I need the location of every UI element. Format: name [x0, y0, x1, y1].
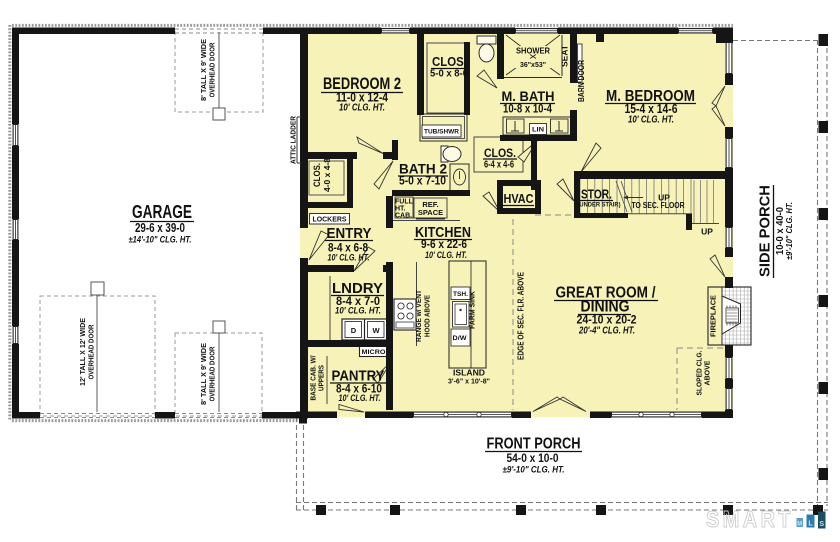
svg-text:5-0 x 7-10: 5-0 x 7-10	[399, 176, 446, 188]
svg-text:(UNDER STAIR): (UNDER STAIR)	[578, 202, 621, 209]
svg-text:LNDRY: LNDRY	[332, 281, 383, 297]
svg-text:24-10 x 20-2: 24-10 x 20-2	[577, 313, 637, 327]
svg-text:SIDE PORCH: SIDE PORCH	[758, 185, 774, 277]
svg-text:SHOWER: SHOWER	[516, 46, 550, 56]
svg-text:HVAC: HVAC	[504, 191, 535, 206]
svg-text:PANTRY: PANTRY	[332, 369, 385, 385]
svg-text:EDGE OF SEC. FLR. ABOVE: EDGE OF SEC. FLR. ABOVE	[517, 271, 526, 360]
svg-text:LIN: LIN	[532, 127, 544, 134]
svg-text:ATTIC LADDER: ATTIC LADDER	[291, 116, 298, 164]
svg-text:ENTRY: ENTRY	[327, 226, 372, 242]
svg-text:TUB/SHWR: TUB/SHWR	[424, 129, 459, 136]
svg-text:D: D	[351, 326, 357, 335]
svg-text:4-0 x 4-8: 4-0 x 4-8	[322, 158, 332, 192]
svg-text:29-6 x 39-0: 29-6 x 39-0	[135, 221, 185, 235]
svg-text:HOOD ABOVE: HOOD ABOVE	[425, 295, 432, 337]
svg-text:GARAGE: GARAGE	[132, 202, 192, 222]
svg-text:UP: UP	[701, 227, 713, 237]
svg-text:CAB.: CAB.	[395, 213, 412, 220]
svg-text:MICRO: MICRO	[362, 349, 386, 356]
svg-text:10' CLG. HT.: 10' CLG. HT.	[628, 115, 674, 126]
svg-text:CLOS.: CLOS.	[484, 146, 516, 160]
svg-text:12' TALL X 12' WIDE: 12' TALL X 12' WIDE	[80, 318, 87, 386]
svg-text:FULL: FULL	[395, 199, 414, 206]
svg-text:TO SEC. FLOOR: TO SEC. FLOOR	[632, 201, 685, 210]
svg-text:3'-6" x 10'-8": 3'-6" x 10'-8"	[448, 379, 490, 386]
svg-text:20'-4" CLG. HT.: 20'-4" CLG. HT.	[578, 326, 635, 337]
svg-text:SMART: SMART	[706, 506, 794, 532]
svg-text:S: S	[819, 521, 824, 528]
svg-text:M: M	[797, 522, 802, 528]
svg-text:OVERHEAD DOOR: OVERHEAD DOOR	[210, 347, 217, 402]
svg-text:FARM SINK: FARM SINK	[470, 291, 477, 329]
svg-text:54-0 x 10-0: 54-0 x 10-0	[507, 451, 559, 465]
svg-text:10' CLG. HT.: 10' CLG. HT.	[339, 393, 381, 404]
svg-text:BASE CAB. W/: BASE CAB. W/	[311, 355, 318, 400]
svg-text:±9'-10" CLG. HT.: ±9'-10" CLG. HT.	[503, 465, 565, 476]
svg-text:±9'-10" CLG. HT.: ±9'-10" CLG. HT.	[784, 202, 794, 260]
svg-text:L: L	[808, 521, 813, 528]
svg-text:TSH.: TSH.	[453, 291, 468, 298]
svg-text:10' CLG. HT.: 10' CLG. HT.	[425, 250, 467, 261]
svg-text:FIREPLACE: FIREPLACE	[711, 295, 718, 337]
svg-text:OVERHEAD DOOR: OVERHEAD DOOR	[89, 325, 96, 380]
svg-text:ABOVE: ABOVE	[703, 361, 712, 386]
svg-text:BARN DOOR: BARN DOOR	[577, 60, 586, 102]
svg-text:±14'-10" CLG. HT.: ±14'-10" CLG. HT.	[129, 235, 192, 246]
svg-text:SPACE: SPACE	[418, 208, 443, 217]
svg-text:FRONT PORCH: FRONT PORCH	[487, 436, 581, 453]
svg-text:HT.: HT.	[395, 206, 406, 213]
svg-text:5-0 x 8-0: 5-0 x 8-0	[430, 68, 468, 80]
svg-text:LOCKERS: LOCKERS	[313, 217, 347, 224]
svg-text:6-4 x 4-6: 6-4 x 4-6	[484, 160, 514, 171]
svg-text:8' TALL X 9' WIDE: 8' TALL X 9' WIDE	[201, 39, 208, 101]
svg-text:RANGE w/ VENT: RANGE w/ VENT	[416, 289, 423, 342]
svg-text:M. BATH: M. BATH	[502, 88, 555, 104]
svg-text:OVERHEAD DOOR: OVERHEAD DOOR	[210, 43, 217, 98]
svg-text:STOR.: STOR.	[581, 188, 612, 202]
svg-text:ISLAND: ISLAND	[453, 369, 485, 378]
svg-text:UPPERS: UPPERS	[319, 365, 326, 391]
svg-text:10-8 x 10-4: 10-8 x 10-4	[503, 104, 552, 116]
svg-text:8' TALL X 9' WIDE: 8' TALL X 9' WIDE	[201, 343, 208, 405]
svg-text:W: W	[372, 326, 380, 335]
svg-text:D/W: D/W	[453, 335, 468, 342]
svg-text:10' CLG. HT.: 10' CLG. HT.	[339, 103, 385, 114]
svg-text:BATH 2: BATH 2	[399, 161, 447, 177]
svg-text:CLOS.: CLOS.	[312, 163, 322, 187]
svg-text:10' CLG. HT.: 10' CLG. HT.	[335, 306, 381, 317]
svg-text:SEAT: SEAT	[561, 45, 570, 67]
svg-text:10' CLG. HT.: 10' CLG. HT.	[328, 253, 370, 264]
svg-text:36"x53": 36"x53"	[520, 60, 546, 69]
